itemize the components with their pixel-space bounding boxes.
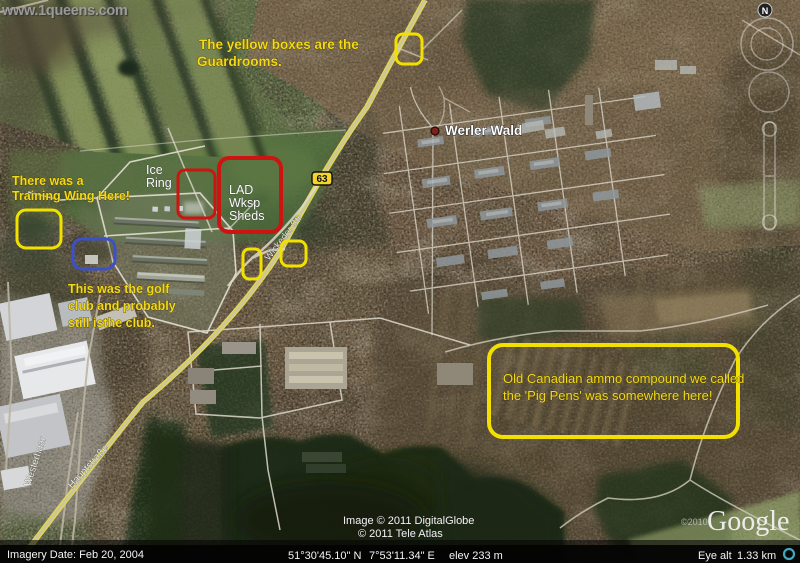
svg-text:7°53'11.34" E: 7°53'11.34" E (369, 550, 435, 562)
svg-text:© 2011 Tele Atlas: © 2011 Tele Atlas (358, 528, 443, 540)
svg-text:Wksp: Wksp (229, 196, 260, 210)
svg-text:The yellow boxes are the: The yellow boxes are the (199, 37, 359, 52)
svg-text:Eye alt: Eye alt (698, 550, 732, 562)
svg-text:Ice: Ice (146, 163, 163, 177)
svg-text:club and probably: club and probably (68, 299, 176, 313)
svg-text:still isthe club.: still isthe club. (68, 316, 155, 330)
svg-text:Sheds: Sheds (229, 209, 264, 223)
svg-text:Werler Wald: Werler Wald (445, 123, 522, 138)
svg-text:Imagery Date: Feb 20, 2004: Imagery Date: Feb 20, 2004 (7, 549, 144, 561)
svg-text:This was the golf: This was the golf (68, 282, 170, 296)
svg-text:There was a: There was a (12, 174, 85, 188)
svg-text:the 'Pig Pens' was somewhere h: the 'Pig Pens' was somewhere here! (503, 388, 712, 403)
svg-text:Training Wing Here!: Training Wing Here! (12, 189, 130, 203)
svg-text:Ring: Ring (146, 176, 172, 190)
svg-text:51°30'45.10" N: 51°30'45.10" N (288, 550, 361, 562)
svg-text:©2010: ©2010 (681, 517, 708, 527)
svg-text:elev 233 m: elev 233 m (449, 550, 503, 562)
svg-text:1.33 km: 1.33 km (737, 550, 776, 562)
svg-text:www.1queens.com: www.1queens.com (1, 3, 128, 19)
svg-text:Guardrooms.: Guardrooms. (197, 54, 282, 69)
svg-text:N: N (762, 6, 769, 16)
svg-text:Image © 2011 DigitalGlobe: Image © 2011 DigitalGlobe (343, 515, 474, 527)
svg-text:LAD: LAD (229, 183, 253, 197)
svg-text:63: 63 (316, 174, 328, 185)
svg-text:Old Canadian ammo compound we: Old Canadian ammo compound we called (503, 371, 744, 386)
svg-text:Google: Google (707, 506, 789, 537)
